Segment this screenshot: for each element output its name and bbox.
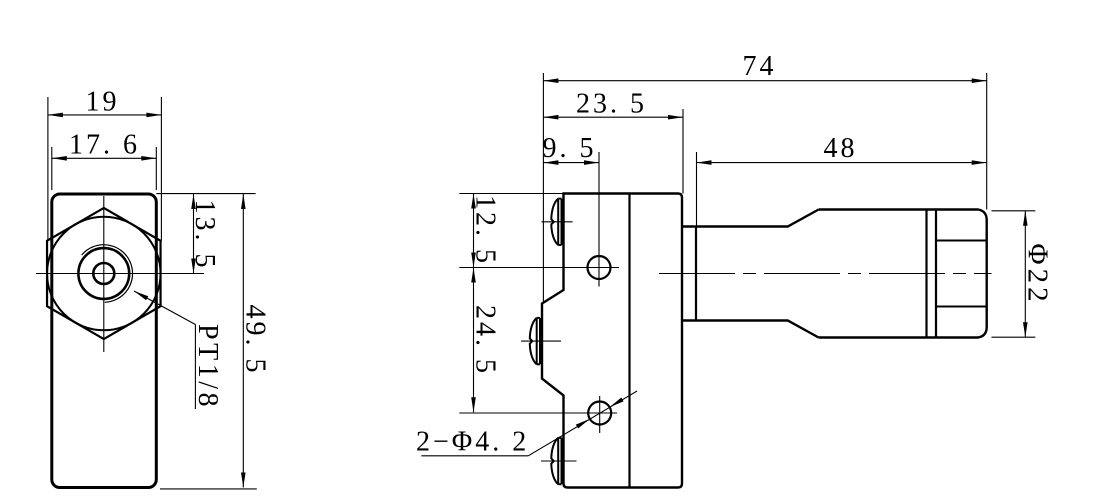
svg-text:12. 5: 12. 5: [470, 195, 501, 266]
svg-text:13. 5: 13. 5: [189, 200, 220, 271]
svg-text:23. 5: 23. 5: [576, 89, 647, 120]
svg-text:Φ22: Φ22: [1022, 243, 1054, 305]
svg-text:74: 74: [743, 51, 777, 82]
svg-text:9. 5: 9. 5: [543, 133, 597, 164]
svg-text:2−Φ4. 2: 2−Φ4. 2: [416, 427, 529, 458]
svg-text:17. 6: 17. 6: [69, 130, 140, 161]
svg-text:19: 19: [86, 87, 120, 118]
svg-text:48: 48: [824, 133, 858, 164]
svg-text:PT1/8: PT1/8: [192, 324, 223, 410]
svg-text:49. 5: 49. 5: [240, 305, 271, 376]
svg-text:24. 5: 24. 5: [470, 305, 501, 376]
